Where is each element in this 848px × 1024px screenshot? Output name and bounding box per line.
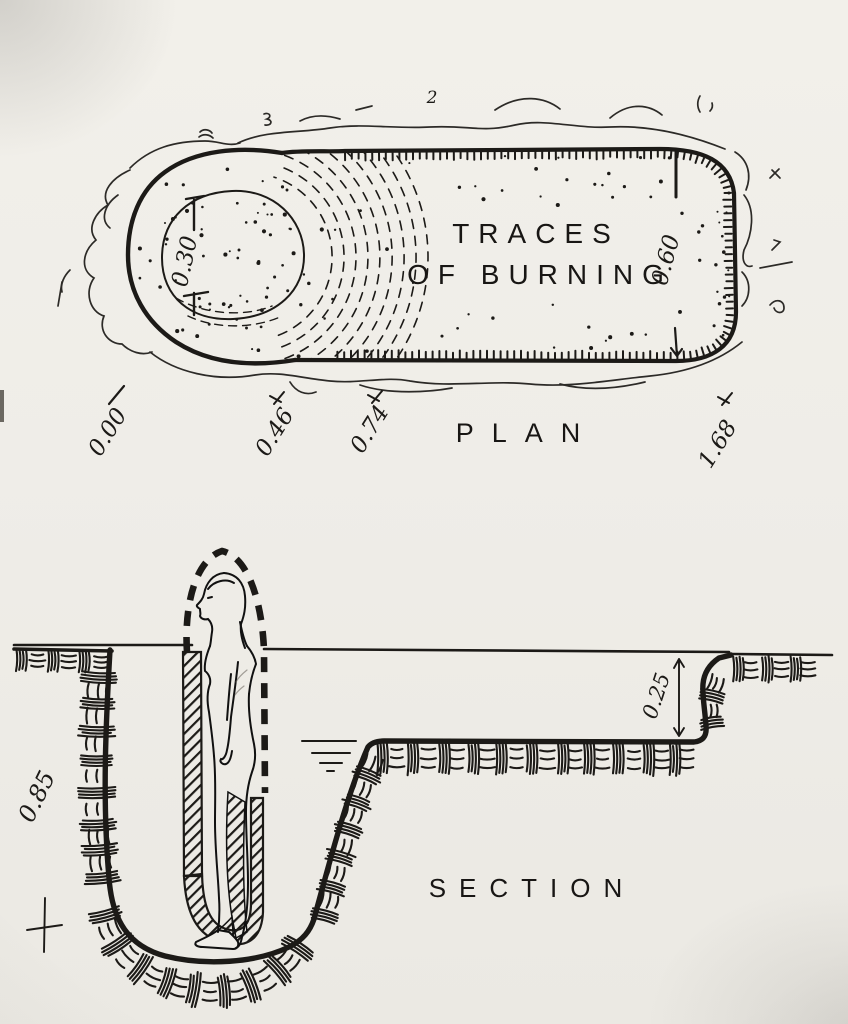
- pit-outline: [128, 149, 736, 363]
- plan-dim-0-60: 0.60: [647, 232, 685, 288]
- ground-surface-line: [14, 645, 832, 655]
- section-title: SECTION: [429, 873, 636, 903]
- section-dim-0-25: 0.25: [638, 670, 675, 722]
- plan-baseline-0-74: 0.74: [345, 401, 394, 458]
- plan-baseline-0-00: 0.00: [83, 404, 132, 461]
- plan-dim-0-30: 0.30: [167, 234, 203, 290]
- stray-numeral: 2: [426, 88, 438, 108]
- plan-title: PLAN: [456, 418, 599, 448]
- grave-lining: [183, 652, 263, 944]
- stipple-dots: [138, 155, 731, 359]
- water-level-mark: [302, 741, 356, 771]
- plan-baseline-0-46: 0.46: [250, 404, 299, 461]
- burnt-lining-texture: [16, 649, 815, 1008]
- traces-label-line2: OF BURNING: [407, 259, 673, 290]
- traces-label-line1: TRACES: [452, 218, 620, 249]
- section-dim-0-85: 0.85: [13, 766, 62, 826]
- photo-edge-mark: [0, 390, 4, 422]
- plan-baseline-1-68: 1.68: [693, 416, 742, 473]
- section-view: 0.25 0.85 SECTION: [0, 390, 832, 1008]
- plan-and-section-drawing: TRACES OF BURNING 0.30 0.60 0.00 0.46 0.…: [0, 0, 848, 1024]
- archaeological-figure-page: TRACES OF BURNING 0.30 0.60 0.00 0.46 0.…: [0, 0, 848, 1024]
- ground-band-top-edge: [14, 649, 112, 651]
- plan-view: TRACES OF BURNING 0.30 0.60 0.00 0.46 0.…: [58, 86, 792, 473]
